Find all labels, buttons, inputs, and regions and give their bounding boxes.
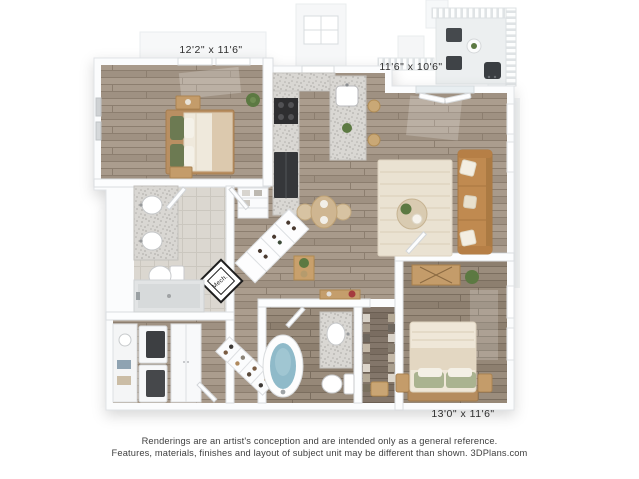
patio-chair <box>446 28 462 42</box>
window <box>178 58 212 65</box>
living-room <box>378 150 492 256</box>
tub-faucet <box>281 390 286 395</box>
faucet <box>139 239 142 242</box>
living-dimensions-label: 11'6" x 10'6" <box>379 61 442 73</box>
balcony-railing <box>506 8 516 86</box>
potted-plant <box>342 123 352 133</box>
basket <box>301 271 308 278</box>
pillow <box>184 146 194 166</box>
toilet <box>322 375 342 393</box>
bedroom2-dimensions-label: 13'0" x 11'6" <box>431 408 494 420</box>
potted-plant <box>401 204 412 215</box>
pillow <box>184 118 194 138</box>
utility-sink <box>119 334 131 346</box>
balcony <box>432 8 516 86</box>
disclaimer-line-1: Renderings are an artist's conception an… <box>0 435 639 447</box>
shower-drain <box>167 294 171 298</box>
faucet <box>345 83 348 86</box>
shower-head <box>136 292 140 300</box>
place-setting <box>320 216 328 224</box>
lamp <box>185 99 191 105</box>
washer-door <box>146 331 165 358</box>
disclaimer-line-2: Features, materials, finishes and layout… <box>0 447 639 459</box>
grill <box>484 62 501 79</box>
patio-chair <box>446 56 462 70</box>
pillow <box>170 116 184 140</box>
pillow <box>170 144 184 168</box>
throw-pillow <box>463 195 476 208</box>
sofa-arm <box>458 246 492 254</box>
sink <box>142 196 162 214</box>
nightstand <box>478 374 492 392</box>
place-setting <box>320 200 328 208</box>
throw-pillow <box>460 230 477 247</box>
kitchen-window <box>302 66 334 73</box>
closet-bench <box>371 382 388 396</box>
bedroom1-dimensions-label: 12'2" x 11'6" <box>179 44 242 56</box>
disclaimer: Renderings are an artist's conception an… <box>0 435 639 460</box>
window <box>216 58 250 65</box>
bed-throw <box>212 113 232 171</box>
faucet <box>139 203 142 206</box>
exterior-band <box>514 98 520 288</box>
laundry <box>113 324 201 402</box>
wall-art <box>96 98 101 116</box>
pillow <box>418 368 442 377</box>
wall-art <box>96 122 101 140</box>
wall <box>354 307 362 403</box>
dryer-door <box>146 370 165 397</box>
window <box>507 142 514 172</box>
kitchen-counter <box>273 73 335 91</box>
nightstand <box>396 374 409 392</box>
island-sink <box>336 86 358 106</box>
bar-stool <box>368 100 380 112</box>
wall <box>226 186 234 320</box>
bed-throw <box>410 348 476 370</box>
coffee-table <box>397 199 427 229</box>
nightstand <box>170 167 192 178</box>
tray <box>412 214 422 224</box>
wall <box>94 179 270 187</box>
sofa-arm <box>458 150 492 158</box>
throw-pillow <box>460 160 477 177</box>
window <box>507 286 514 318</box>
faucet <box>346 332 349 335</box>
towel <box>117 376 131 385</box>
range-cooktop <box>274 98 298 124</box>
window <box>507 104 514 134</box>
bar-stool <box>368 134 380 146</box>
potted-plant <box>465 270 479 284</box>
flowers <box>349 291 356 298</box>
wall <box>263 58 273 186</box>
sink <box>142 232 162 250</box>
vase <box>327 292 332 297</box>
balcony-railing <box>432 8 514 18</box>
wall <box>106 312 234 320</box>
toilet-tank <box>344 374 354 394</box>
floorplan-rendering: Mech. <box>0 0 639 479</box>
sofa-back <box>486 152 492 252</box>
pillow <box>448 368 472 377</box>
french-door-glass <box>416 86 474 93</box>
wall <box>258 299 370 307</box>
window <box>507 328 514 360</box>
potted-plant <box>299 258 309 268</box>
sink <box>327 323 345 345</box>
towel <box>117 360 131 369</box>
floorplan-graphic: Mech. <box>0 0 639 479</box>
potted-plant <box>471 43 477 49</box>
sunlight-patch <box>406 95 462 140</box>
